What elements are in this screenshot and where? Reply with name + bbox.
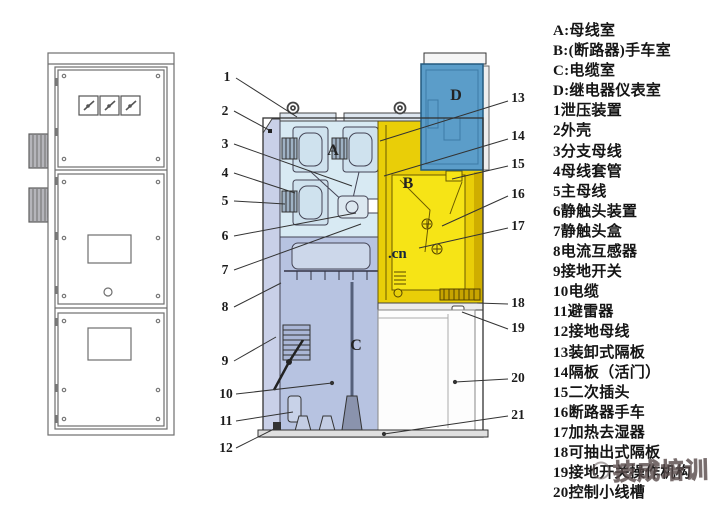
legend-item: 6静触头装置 (553, 202, 719, 222)
diagram-stage: 1 2 3 4 5 6 7 8 9 10 11 12 13 14 15 16 1… (0, 0, 720, 506)
zone-d-relay-room (421, 53, 489, 170)
zone-c-label: C (350, 337, 362, 354)
legend-item: 16断路器手车 (553, 403, 719, 423)
callout-number: 8 (222, 299, 229, 314)
withdrawable-partition (378, 303, 483, 310)
callout-number: 19 (511, 320, 525, 335)
heater-dehumidifier (440, 289, 480, 300)
legend-item: 7静触头盒 (553, 222, 719, 242)
legend-item: 3分支母线 (553, 142, 719, 162)
legend-item: D:继电器仪表室 (553, 81, 719, 101)
callout-number: 9 (222, 353, 229, 368)
legend-item: 1泄压装置 (553, 101, 719, 121)
zone-a-label: A (327, 142, 339, 159)
callout-number: 12 (219, 440, 233, 455)
cabinet-front-view (29, 53, 174, 435)
legend-item: 20控制小线槽 (553, 483, 719, 503)
legend-item: 5主母线 (553, 182, 719, 202)
callout-number: 14 (511, 128, 525, 143)
legend-item: 2外壳 (553, 121, 719, 141)
legend-item: 15二次插头 (553, 383, 719, 403)
zone-b-label: B (403, 175, 414, 192)
legend-item: 19接地开关操作机构 (553, 463, 719, 483)
control-wire-trough-zone (378, 310, 475, 430)
callout-number: 1 (224, 69, 231, 84)
zone-d-label: D (450, 87, 462, 104)
callout-number: 4 (222, 165, 229, 180)
callout-number: 21 (511, 407, 525, 422)
cross-section-view (258, 53, 489, 437)
callout-number: 10 (219, 386, 233, 401)
panel-meters (79, 96, 140, 115)
callout-number: 15 (511, 156, 525, 171)
legend-item: 10电缆 (553, 282, 719, 302)
legend-item: 8电流互感器 (553, 242, 719, 262)
zone-c-cable-room (273, 237, 378, 437)
legend-item: 12接地母线 (553, 322, 719, 342)
legend-item: 13装卸式隔板 (553, 343, 719, 363)
cn-watermark: .cn (388, 246, 407, 262)
legend-item: 18可抽出式隔板 (553, 443, 719, 463)
lifting-eye-right (395, 103, 406, 114)
callout-number: 16 (511, 186, 525, 201)
legend-item: 14隔板（活门） (553, 363, 719, 383)
callout-number: 20 (511, 370, 525, 385)
callout-number: 13 (511, 90, 525, 105)
callout-number: 6 (222, 228, 229, 243)
legend-item: B:(断路器)手车室 (553, 41, 719, 61)
legend-item: 17加热去湿器 (553, 423, 719, 443)
callout-number: 17 (511, 218, 525, 233)
legend-item: 4母线套管 (553, 162, 719, 182)
legend-item: A:母线室 (553, 21, 719, 41)
callout-number: 18 (511, 295, 525, 310)
callout-number: 11 (220, 413, 233, 428)
callout-number: 3 (222, 136, 229, 151)
legend-item: C:电缆室 (553, 61, 719, 81)
callout-number: 5 (222, 193, 229, 208)
current-transformer (283, 325, 310, 360)
callout-number: 2 (222, 103, 229, 118)
legend: A:母线室 B:(断路器)手车室 C:电缆室 D:继电器仪表室 1泄压装置 2外… (553, 21, 719, 503)
callout-number: 7 (222, 262, 229, 277)
legend-item: 11避雷器 (553, 302, 719, 322)
base-frame (258, 430, 488, 437)
legend-item: 9接地开关 (553, 262, 719, 282)
